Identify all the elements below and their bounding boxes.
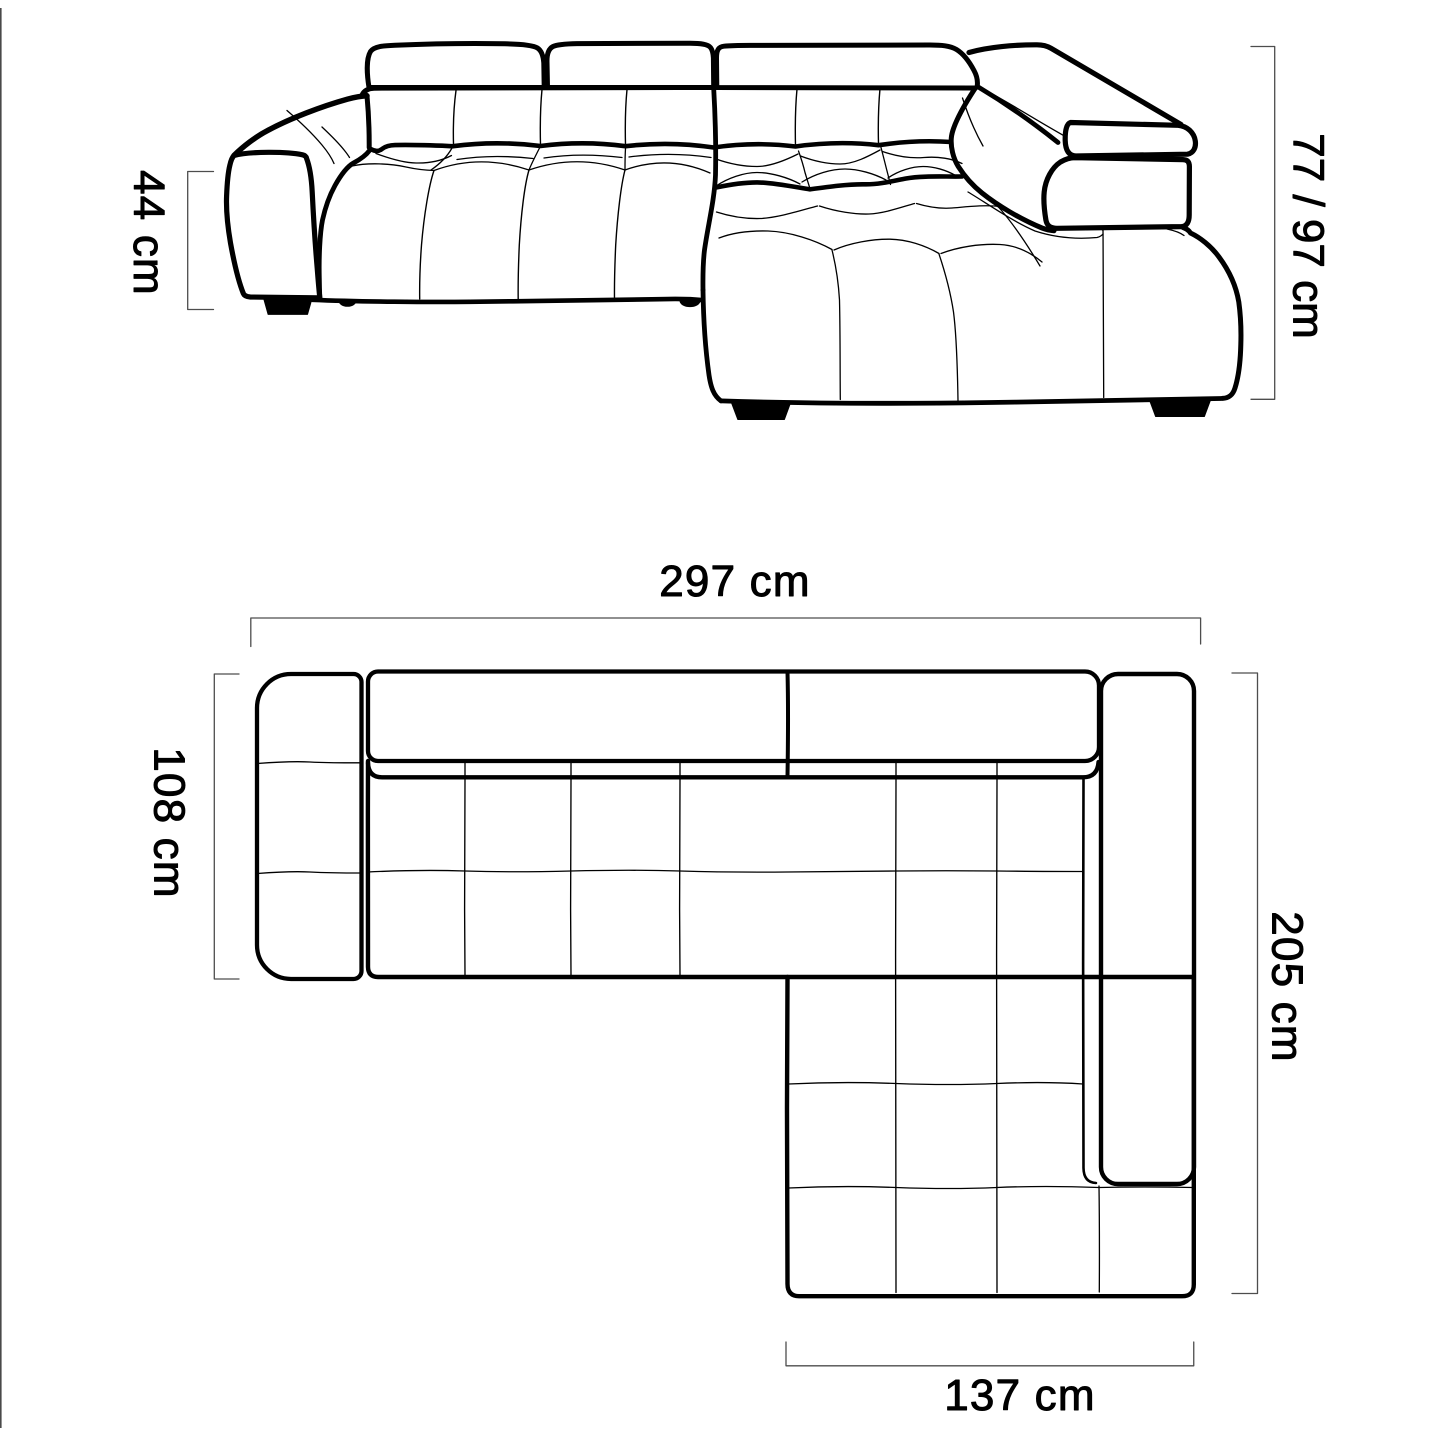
svg-text:205 cm: 205 cm — [1263, 911, 1312, 1063]
svg-text:44 cm: 44 cm — [124, 170, 173, 296]
svg-text:108 cm: 108 cm — [145, 747, 194, 899]
svg-text:297 cm: 297 cm — [659, 557, 811, 606]
svg-text:137 cm: 137 cm — [944, 1371, 1096, 1420]
svg-text:77 / 97 cm: 77 / 97 cm — [1284, 133, 1333, 338]
